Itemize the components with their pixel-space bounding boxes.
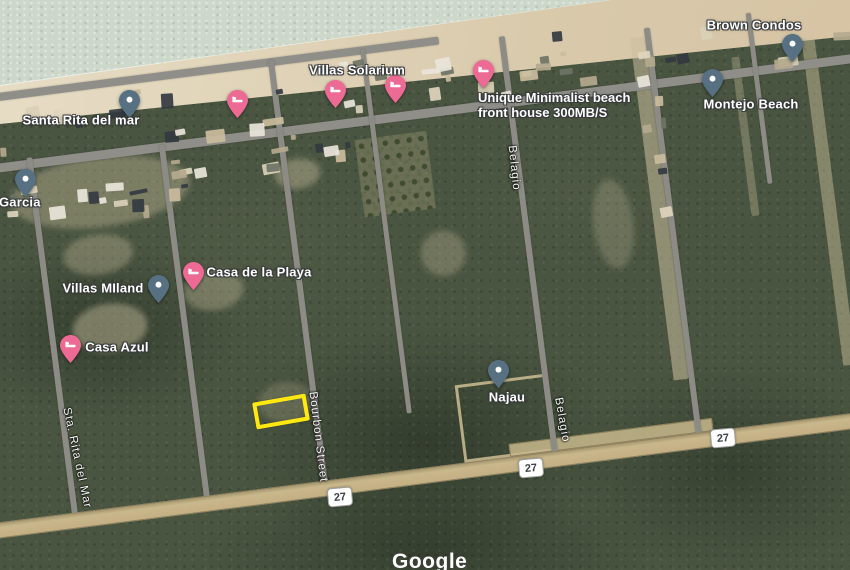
- building: [291, 135, 297, 140]
- place-label-garcia[interactable]: Garcia: [0, 195, 41, 210]
- building: [676, 52, 690, 64]
- poi-pin[interactable]: [488, 360, 509, 388]
- building: [580, 76, 598, 88]
- place-label-najau[interactable]: Najau: [489, 390, 525, 405]
- poi-pin[interactable]: [782, 34, 803, 62]
- building: [275, 89, 283, 95]
- route-27-shield: 27: [327, 486, 354, 507]
- place-label-santa-rita-del-mar[interactable]: Santa Rita del mar: [22, 113, 139, 128]
- route-27-shield: 27: [518, 457, 545, 478]
- route-27-shield: 27: [710, 427, 737, 448]
- building: [536, 63, 551, 71]
- building: [175, 128, 186, 136]
- lodging-pin[interactable]: [60, 335, 81, 363]
- building: [422, 68, 441, 75]
- building: [560, 52, 566, 56]
- building: [355, 105, 363, 114]
- building: [654, 153, 666, 163]
- poi-pin[interactable]: [148, 275, 169, 303]
- building: [0, 148, 7, 157]
- building: [551, 31, 562, 42]
- building: [655, 96, 663, 106]
- building: [168, 188, 180, 202]
- building: [636, 75, 650, 88]
- place-label-casa-de-la-playa[interactable]: Casa de la Playa: [206, 265, 311, 280]
- satellite-map-canvas[interactable]: Santa Rita del mar Villas Solarium Brown…: [0, 0, 850, 570]
- street-unnamed-2: [159, 144, 212, 510]
- building: [161, 93, 174, 108]
- cleared-strip: [801, 37, 850, 366]
- place-label-line-2: front house 300MB/S: [478, 105, 630, 120]
- building: [205, 129, 226, 144]
- building: [77, 188, 88, 202]
- building: [194, 167, 208, 179]
- lodging-pin[interactable]: [183, 262, 204, 290]
- building: [170, 159, 180, 164]
- building: [7, 211, 18, 218]
- building: [250, 123, 265, 137]
- building: [106, 182, 125, 192]
- place-label-villas-miland[interactable]: Villas MIland: [62, 281, 143, 296]
- lodging-pin[interactable]: [325, 80, 346, 108]
- poi-pin[interactable]: [15, 169, 36, 197]
- building: [88, 192, 99, 205]
- lodging-pin[interactable]: [473, 60, 494, 88]
- building: [519, 69, 538, 81]
- highway-27-road: [0, 401, 850, 539]
- sand-patch: [61, 230, 136, 279]
- building: [49, 205, 67, 220]
- street-unnamed-6: [644, 28, 703, 443]
- building: [661, 117, 667, 128]
- building: [132, 199, 145, 213]
- building: [560, 68, 573, 75]
- building: [665, 56, 677, 63]
- place-label-montejo-beach[interactable]: Montejo Beach: [703, 97, 798, 112]
- building: [428, 87, 441, 102]
- sand-patch: [588, 177, 639, 271]
- building: [345, 141, 351, 148]
- building: [659, 206, 673, 218]
- building: [657, 168, 667, 175]
- lodging-pin[interactable]: [227, 90, 248, 118]
- orchard-grove: [355, 131, 436, 218]
- street-unnamed-4: [360, 49, 412, 414]
- place-label-brown-condos[interactable]: Brown Condos: [707, 18, 802, 33]
- google-watermark: Google: [392, 550, 467, 570]
- lodging-pin[interactable]: [385, 75, 406, 103]
- building: [834, 32, 850, 41]
- place-label-villas-solarium[interactable]: Villas Solarium: [309, 63, 405, 78]
- building: [315, 143, 324, 153]
- place-label-casa-azul[interactable]: Casa Azul: [85, 340, 148, 355]
- place-label-unique-minimalist[interactable]: Unique Minimalist beach front house 300M…: [478, 90, 630, 120]
- place-label-line-1: Unique Minimalist beach: [478, 90, 630, 105]
- sand-patch: [418, 228, 468, 278]
- beach-poi-pin[interactable]: [702, 69, 723, 97]
